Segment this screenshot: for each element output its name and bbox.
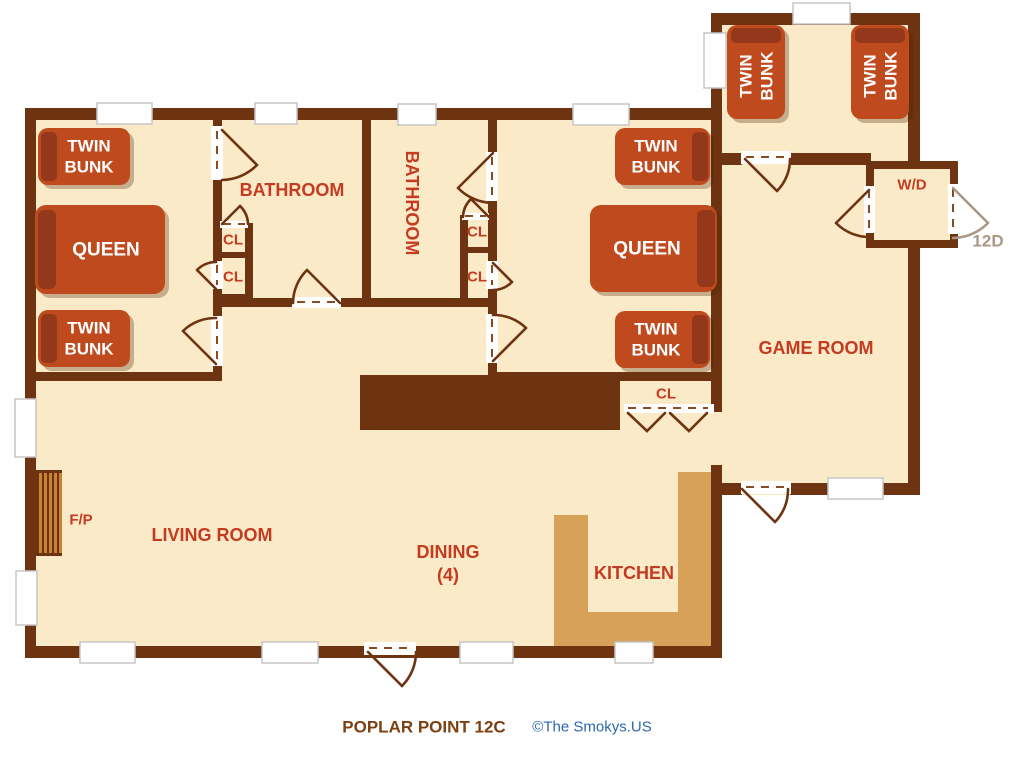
window	[460, 642, 513, 663]
bed-twin-bunk-3: TWIN BUNK	[615, 128, 714, 189]
bed-pillow	[692, 315, 708, 364]
plan-credit: ©The Smokys.US	[532, 719, 651, 736]
label-dining-capacity: (4)	[437, 565, 459, 585]
window	[398, 104, 436, 125]
wall-segment	[950, 161, 958, 188]
bed-label: TWIN	[861, 54, 880, 97]
window	[262, 642, 318, 663]
plan-title: POPLAR POINT 12C	[342, 718, 505, 737]
bar-counter-block	[360, 375, 620, 430]
bed-twin-bunk-2: TWIN BUNK	[38, 310, 134, 371]
window	[16, 571, 37, 625]
window	[573, 104, 629, 125]
floor-plan: TWIN BUNK QUEEN TWIN BUNK TWIN BUNK	[0, 0, 1024, 768]
label-dining: DINING	[417, 542, 480, 562]
bed-label: BUNK	[882, 51, 901, 101]
fireplace-stripe	[49, 473, 52, 553]
wall-segment	[362, 120, 371, 307]
wall-segment	[711, 153, 742, 165]
wall-segment	[460, 247, 497, 253]
fireplace-stripe	[54, 473, 57, 553]
bed-pillow	[692, 132, 708, 181]
bed-label: TWIN	[67, 319, 110, 338]
bed-pillow	[38, 210, 56, 289]
wall-segment	[488, 120, 497, 153]
bed-pillow	[41, 314, 57, 363]
bed-label: TWIN	[737, 54, 756, 97]
bed-queen-1: QUEEN	[35, 205, 169, 298]
bed-twin-bunk-1: TWIN BUNK	[38, 128, 134, 189]
bed-twin-bunk-6: TWIN BUNK	[851, 25, 913, 123]
window	[80, 642, 135, 663]
bed-queen-2: QUEEN	[590, 205, 721, 296]
label-bathroom-2: BATHROOM	[402, 151, 422, 256]
label-game-room: GAME ROOM	[759, 338, 874, 358]
label-fireplace: F/P	[69, 512, 92, 529]
bed-label: BUNK	[64, 340, 114, 359]
bed-label: TWIN	[634, 320, 677, 339]
fireplace-stripe	[44, 473, 47, 553]
label-closet: CL	[467, 269, 487, 286]
label-bathroom-1: BATHROOM	[240, 180, 345, 200]
wall-segment	[488, 200, 497, 263]
label-kitchen: KITCHEN	[594, 563, 674, 583]
bed-label: QUEEN	[613, 239, 681, 260]
label-closet: CL	[656, 386, 676, 403]
captions: POPLAR POINT 12C ©The Smokys.US	[342, 718, 651, 737]
wall-segment	[908, 247, 920, 495]
bed-label: TWIN	[67, 137, 110, 156]
window	[828, 478, 883, 499]
bed-label: QUEEN	[72, 240, 140, 261]
label-living-room: LIVING ROOM	[152, 525, 273, 545]
bed-label: BUNK	[64, 158, 114, 177]
counter-right	[678, 472, 714, 646]
fireplace-stripe	[39, 473, 42, 553]
bed-label: BUNK	[631, 158, 681, 177]
bed-pillow	[697, 210, 715, 287]
bed-twin-bunk-4: TWIN BUNK	[615, 311, 714, 372]
label-closet: CL	[223, 232, 243, 249]
fireplace	[36, 470, 62, 556]
wall-segment	[790, 153, 871, 165]
bed-label: BUNK	[631, 341, 681, 360]
wall-segment	[341, 298, 497, 307]
wall-segment	[222, 294, 253, 300]
wall-segment	[488, 362, 497, 381]
window	[255, 103, 297, 124]
wall-segment	[711, 483, 742, 495]
wall-segment	[497, 372, 722, 381]
wall-segment	[866, 240, 958, 248]
wall-segment	[222, 252, 253, 258]
wall-segment	[213, 120, 222, 127]
wall-segment	[245, 223, 253, 300]
label-closet: CL	[223, 269, 243, 286]
label-washer-dryer: W/D	[897, 177, 926, 194]
fireplace-stripe	[59, 473, 62, 553]
bed-pillow	[855, 28, 905, 43]
bed-label: BUNK	[758, 51, 777, 101]
wall-segment	[25, 372, 222, 381]
label-entry-door-12d: 12D	[972, 232, 1003, 251]
floor-laundry	[866, 161, 958, 248]
wall-segment	[950, 233, 958, 248]
window	[97, 103, 152, 124]
wall-segment	[866, 161, 874, 190]
window	[615, 642, 653, 663]
window	[704, 33, 726, 88]
bed-pillow	[41, 132, 57, 181]
bed-pillow	[731, 28, 781, 43]
window	[15, 399, 36, 457]
wall-segment	[866, 161, 958, 169]
wall-segment	[866, 231, 874, 248]
label-closet: CL	[467, 224, 487, 241]
door-jamb	[624, 404, 714, 413]
bed-label: TWIN	[634, 137, 677, 156]
window	[793, 3, 850, 24]
bed-twin-bunk-5: TWIN BUNK	[727, 25, 789, 123]
